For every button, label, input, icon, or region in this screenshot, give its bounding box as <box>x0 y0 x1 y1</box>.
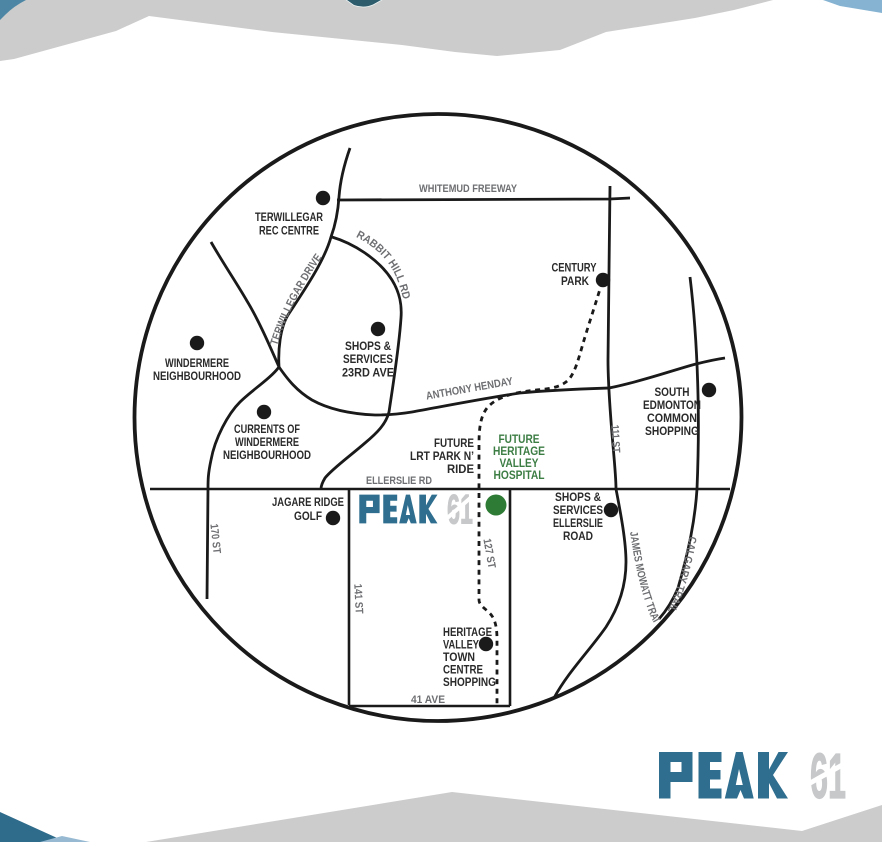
svg-text:WINDERMERE: WINDERMERE <box>165 356 229 370</box>
svg-text:RIDE: RIDE <box>447 462 474 476</box>
svg-text:GOLF: GOLF <box>294 509 322 523</box>
svg-text:CENTURY: CENTURY <box>552 261 597 275</box>
svg-text:111 ST: 111 ST <box>608 425 621 454</box>
svg-text:CURRENTS OF: CURRENTS OF <box>234 422 300 436</box>
svg-text:61: 61 <box>810 740 846 812</box>
svg-text:23RD AVE: 23RD AVE <box>342 366 394 380</box>
svg-text:REC CENTRE: REC CENTRE <box>259 224 319 238</box>
svg-text:SOUTH: SOUTH <box>655 385 690 399</box>
svg-text:SHOPPING: SHOPPING <box>645 424 699 438</box>
svg-text:ELLERSLIE RD: ELLERSLIE RD <box>366 475 432 487</box>
svg-text:ROAD: ROAD <box>563 529 593 543</box>
svg-text:LRT PARK N’: LRT PARK N’ <box>410 449 474 463</box>
svg-text:SHOPS &: SHOPS & <box>555 490 601 504</box>
svg-text:JAGARE RIDGE: JAGARE RIDGE <box>272 495 344 509</box>
svg-text:FUTURE: FUTURE <box>499 434 540 446</box>
svg-text:EDMONTON: EDMONTON <box>643 398 701 412</box>
svg-text:FUTURE: FUTURE <box>434 436 474 450</box>
svg-text:ELLERSLIE: ELLERSLIE <box>553 516 603 530</box>
svg-text:VALLEY: VALLEY <box>500 458 539 470</box>
svg-text:141 ST: 141 ST <box>351 584 365 615</box>
svg-text:HERITAGE: HERITAGE <box>493 446 545 458</box>
svg-text:41 AVE: 41 AVE <box>411 694 445 706</box>
svg-text:WINDERMERE: WINDERMERE <box>235 435 299 449</box>
svg-text:NEIGHBOURHOOD: NEIGHBOURHOOD <box>223 448 311 462</box>
svg-text:NEIGHBOURHOOD: NEIGHBOURHOOD <box>153 369 241 383</box>
svg-text:TERWILLEGAR: TERWILLEGAR <box>255 210 323 224</box>
svg-text:HOSPITAL: HOSPITAL <box>494 470 545 482</box>
svg-text:SHOPS &: SHOPS & <box>345 339 391 353</box>
svg-text:SERVICES: SERVICES <box>553 503 603 517</box>
svg-text:WHITEMUD FREEWAY: WHITEMUD FREEWAY <box>419 183 518 195</box>
svg-text:COMMON: COMMON <box>647 411 697 425</box>
svg-text:SHOPPING: SHOPPING <box>443 675 496 689</box>
svg-text:PARK: PARK <box>561 274 589 288</box>
svg-text:SERVICES: SERVICES <box>343 352 393 366</box>
